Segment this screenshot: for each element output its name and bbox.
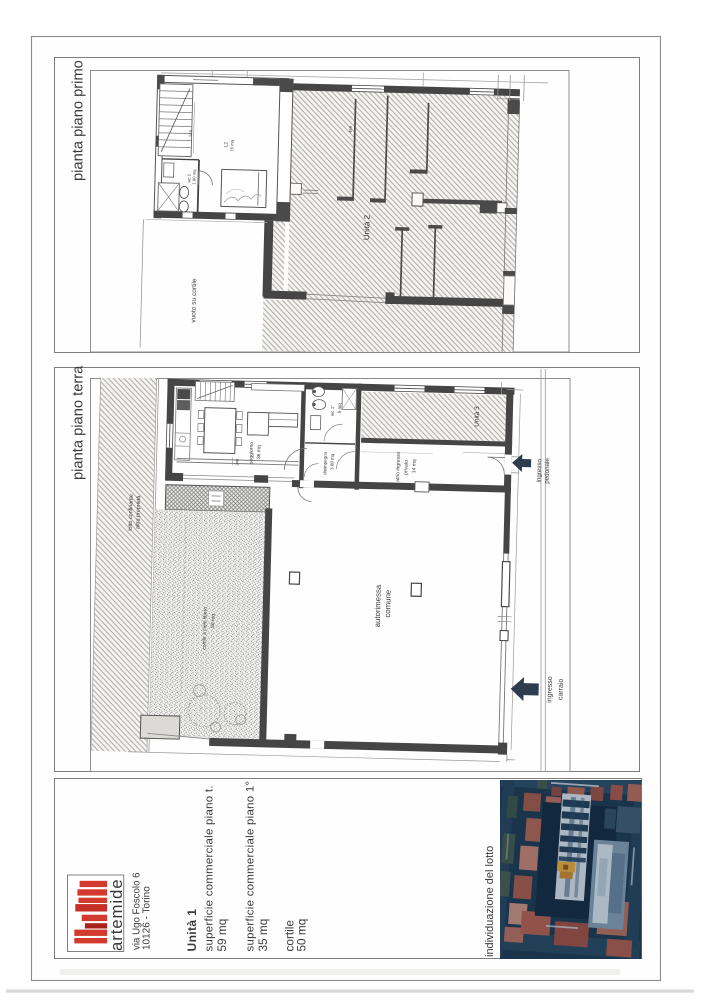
svg-text:pedonale: pedonale xyxy=(544,458,552,484)
svg-text:individuazione del lotto: individuazione del lotto xyxy=(484,846,496,957)
svg-text:vuoto su cortile: vuoto su cortile xyxy=(190,278,198,323)
svg-text:disimpegno: disimpegno xyxy=(322,451,328,475)
svg-text:autorimessa: autorimessa xyxy=(373,584,383,627)
svg-text:5 mq: 5 mq xyxy=(337,403,342,414)
svg-text:carraio: carraio xyxy=(557,679,565,701)
svg-text:artemide: artemide xyxy=(107,879,126,952)
svg-text:cortile a cielo libero: cortile a cielo libero xyxy=(202,607,209,650)
svg-text:10126 - Torino: 10126 - Torino xyxy=(142,886,153,950)
svg-text:16 mq: 16 mq xyxy=(229,139,234,151)
svg-text:14 mq: 14 mq xyxy=(411,459,417,473)
svg-text:1.80 mq: 1.80 mq xyxy=(191,169,196,185)
svg-text:35 mq: 35 mq xyxy=(256,919,270,952)
svg-text:ingresso: ingresso xyxy=(546,676,554,703)
svg-text:50 mq: 50 mq xyxy=(295,919,309,952)
svg-text:349: 349 xyxy=(234,458,239,466)
svg-text:privato: privato xyxy=(403,460,409,475)
svg-text:superficie commerciale piano t: superficie commerciale piano t. xyxy=(204,785,216,951)
svg-text:Unità 3: Unità 3 xyxy=(474,406,482,427)
svg-text:Unità 1: Unità 1 xyxy=(185,909,199,952)
svg-text:59 mq: 59 mq xyxy=(215,919,229,952)
svg-text:516: 516 xyxy=(188,129,193,137)
svg-text:36 mq: 36 mq xyxy=(256,445,262,459)
svg-text:altra proprietà: altra proprietà xyxy=(135,496,142,529)
svg-text:Unità 2: Unità 2 xyxy=(362,214,372,240)
svg-text:comune: comune xyxy=(383,590,393,618)
svg-text:3.68 mq: 3.68 mq xyxy=(329,453,334,470)
svg-text:superficie commerciale piano 1: superficie commerciale piano 1° xyxy=(245,781,257,952)
svg-text:459: 459 xyxy=(348,125,353,133)
svg-text:ingresso: ingresso xyxy=(536,458,544,482)
svg-text:50 mq: 50 mq xyxy=(210,614,216,628)
svg-text:wc 1°: wc 1° xyxy=(330,405,335,416)
svg-text:pianta piano primo: pianta piano primo xyxy=(71,60,87,181)
svg-text:atrio ingresso: atrio ingresso xyxy=(395,451,402,481)
svg-text:pianta piano terra: pianta piano terra xyxy=(71,365,87,480)
svg-text:lotto confinante: lotto confinante xyxy=(128,494,135,531)
